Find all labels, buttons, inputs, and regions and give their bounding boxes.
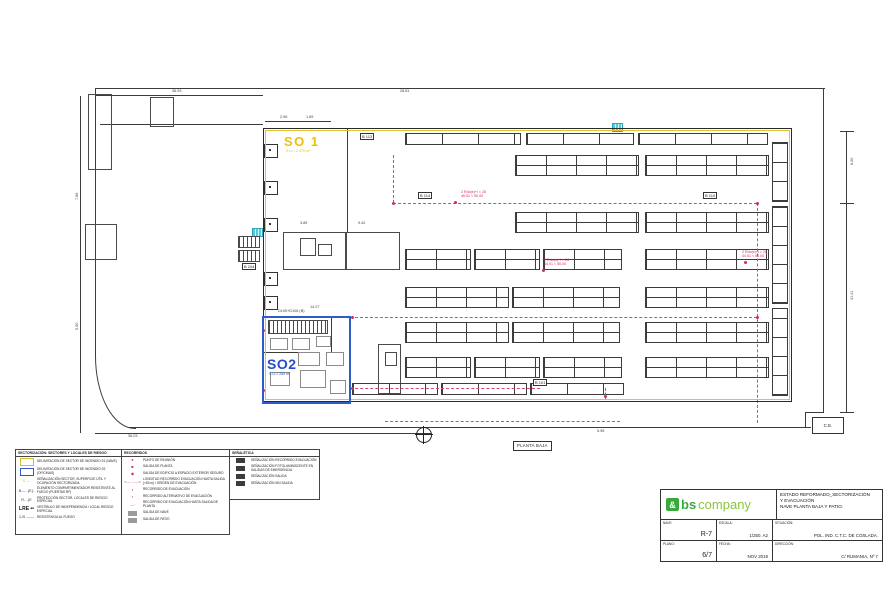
field-value: R-7 — [701, 531, 712, 538]
wall-line — [805, 412, 824, 413]
wall-line — [95, 88, 825, 89]
legend-symbol-icon — [124, 518, 141, 523]
legend-item-text: RECORRIDO ALTERNATIVO DE EVACUACIÓN — [143, 495, 212, 499]
dimension-label: 28.81 — [400, 89, 410, 93]
logo-ampersand-icon: & — [666, 498, 679, 511]
legend-symbol-icon — [18, 458, 35, 466]
legend-item: SEÑALIZACIÓN RECORRIDO EVACUACIÓN — [230, 457, 319, 464]
legend-item-text: SEÑALIZACIÓN SALIDA — [251, 475, 287, 479]
wall-line — [840, 131, 854, 132]
legend-title: SEÑALÉTICA — [230, 450, 319, 457]
legend-item: DELIMITACIÓN DE SECTOR DE INCENDIO S1 (N… — [16, 457, 121, 467]
legend-item-text: SALIDA DE PLANTA — [143, 465, 173, 469]
legend-symbol-icon: ◆ — [124, 472, 141, 477]
legend-item: R- -(EPROTECCIÓN SECTOR, LOCALES DE RIES… — [16, 496, 121, 505]
legend-item: ■SALIDA DE PLANTA — [122, 464, 229, 471]
legend-item: SALIDA DE NAVE — [122, 510, 229, 517]
legend-item-text: SEÑALIZACIÓN RECORRIDO EVACUACIÓN — [251, 459, 316, 463]
field-value: POL. IND. C.T.C. DE COSLADA. — [814, 533, 878, 538]
field-situacion: SITUACIÓN: POL. IND. C.T.C. DE COSLADA. — [773, 520, 882, 540]
room — [88, 94, 112, 170]
legend-item: DELIMITACIÓN DE SECTOR DE INCENDIO S2 (O… — [16, 467, 121, 477]
hatch-block — [238, 250, 260, 262]
wall-line — [95, 95, 263, 96]
legend-symbol-icon: B— -(E)- — [18, 489, 35, 494]
legend-item-text: VESTÍBULO DE INDEPENDENCIA / LOCAL RIESG… — [37, 506, 119, 513]
wall-line — [840, 203, 854, 204]
field-label: SITUACIÓN: — [775, 521, 793, 525]
legend-item-text: ELEMENTO COMPARTIMENTADOR RESISTENTE AL … — [37, 487, 119, 494]
wall-line — [846, 131, 847, 413]
legend-item-text: DELIMITACIÓN DE SECTOR DE INCENDIO S1 (N… — [37, 460, 117, 464]
legend-recorridos: RECORRIDOS ●PUNTO DE REUNIÓN■SALIDA DE P… — [121, 449, 230, 535]
dimension-label: 5.90 — [75, 323, 79, 330]
dimension-label: 36.93 — [172, 89, 182, 93]
dimension-label: 36.03 — [128, 434, 138, 438]
field-label: NAVE: — [663, 521, 672, 525]
legend-item-text: RECORRIDO DE EVACUACIÓN — [143, 488, 190, 492]
legend-symbol-icon: ▪ — [124, 495, 141, 500]
wall-line — [100, 124, 263, 125]
field-plano: PLANO: 6/7 — [661, 541, 717, 561]
legend-item-text: DELIMITACIÓN DE SECTOR DE INCENDIO S2 (O… — [37, 468, 119, 475]
legend-item-text: RESISTENCIA AL FUEGO — [37, 516, 75, 520]
evacuation-route — [385, 421, 620, 422]
logo-text-bold: bs — [681, 497, 696, 512]
legend-item: SEÑALIZACIÓN FOTOLUMINISCENTE EN SALIDAS… — [230, 464, 319, 473]
legend-item-text: SALIDA DE NAVE — [143, 511, 169, 515]
legend-symbol-icon — [232, 481, 249, 486]
title-block: & bscompany ESTADO REFORMADO_SECTORIZACI… — [660, 489, 883, 562]
field-label: ESCALA: — [719, 521, 732, 525]
legend-item: LRE ••VESTÍBULO DE INDEPENDENCIA / LOCAL… — [16, 505, 121, 514]
wall-line — [840, 412, 854, 413]
wall-line — [95, 433, 431, 434]
wall-line — [265, 121, 331, 122]
field-value: 6/7 — [702, 552, 712, 559]
legend-symbol-icon: —· — [124, 503, 141, 508]
legend-symbol-icon: ■ — [124, 465, 141, 470]
boxed-label: B 104 — [242, 263, 256, 270]
compass-icon — [416, 427, 432, 443]
legend-symbol-icon: S — — [18, 479, 35, 484]
company-logo: & bscompany — [661, 490, 777, 519]
legend-symbol-icon — [232, 458, 249, 463]
sector-so1-label: SO 1 — [284, 134, 320, 149]
legend-item-text: SEÑALIZACIÓN FOTOLUMINISCENTE EN SALIDAS… — [251, 465, 317, 472]
legend-item: ◖RECORRIDO DE EVACUACIÓN — [122, 487, 229, 494]
wall-line — [805, 412, 806, 428]
legend-symbol-icon — [18, 468, 35, 476]
legend-symbol-icon: 1-B —— — [18, 515, 35, 520]
legend-item-text: PUNTO DE REUNIÓN — [143, 459, 175, 463]
field-value: NOV 2019 — [747, 554, 768, 559]
legend-item: ×—→—×LONGITUD RECORRIDO EVACUACIÓN HASTA… — [122, 477, 229, 486]
legend-symbol-icon: ● — [124, 458, 141, 463]
room — [85, 224, 117, 260]
legend-item-text: LONGITUD RECORRIDO EVACUACIÓN HASTA SALI… — [143, 478, 227, 485]
hatch-block — [238, 236, 260, 248]
legend-item-text: PROTECCIÓN SECTOR, LOCALES DE RIESGO ESP… — [37, 497, 119, 504]
field-label: PLANO: — [663, 542, 675, 546]
legend-symbol-icon: ◖ — [124, 488, 141, 493]
ce-box-label: C.E. — [812, 417, 844, 434]
legend-title: RECORRIDOS — [122, 450, 229, 457]
dimension-label: 1.89 — [306, 115, 313, 119]
drawing-title-line: NAVE PLANTA BAJA Y PATIO. — [780, 504, 879, 510]
dimension-label: 41.41 — [850, 290, 854, 300]
sector-so1-area: S.U.= 2.470 m² — [286, 149, 310, 153]
dimension-label: 6.00 — [850, 158, 854, 165]
drawing-title: ESTADO REFORMADO_SECTORIZACIÓN Y EVACUAC… — [777, 490, 882, 519]
legend-symbol-icon — [232, 466, 249, 471]
legend-item: S —SEÑALIZACIÓN SECTOR, SUPERFICIE ÚTIL … — [16, 477, 121, 486]
field-fecha: FECHA: NOV 2019 — [717, 541, 773, 561]
legend-senaletica: SEÑALÉTICA SEÑALIZACIÓN RECORRIDO EVACUA… — [229, 449, 320, 500]
wall-line — [823, 88, 824, 413]
field-nave: NAVE: R-7 — [661, 520, 717, 540]
legend-sectorizacion: SECTORIZACIÓN: SECTORES Y LOCALES DE RIE… — [15, 449, 122, 535]
legend-symbol-icon: ×—→—× — [124, 480, 141, 485]
legend-item: ●PUNTO DE REUNIÓN — [122, 457, 229, 464]
legend-item-text: SEÑALIZACIÓN SIN SALIDA — [251, 482, 293, 486]
sector-so2-label: SO2 — [267, 356, 297, 372]
legend-item-text: SEÑALIZACIÓN SECTOR, SUPERFICIE ÚTIL Y O… — [37, 478, 119, 485]
field-label: DIRECCIÓN: — [775, 542, 794, 546]
legend-item: 1-B ——RESISTENCIA AL FUEGO — [16, 514, 121, 521]
room — [150, 97, 174, 127]
field-escala: ESCALA: 1/250. A2 — [717, 520, 773, 540]
dimension-label: 7.86 — [75, 193, 79, 200]
field-direccion: DIRECCIÓN: C/ RUMANIA, Nº 7 — [773, 541, 882, 561]
legend-item-text: SALIDA DE PATIO — [143, 518, 169, 522]
legend-item: —·RECORRIDO DE EVACUACIÓN HASTA SALIDA D… — [122, 500, 229, 509]
legend-symbol-icon — [124, 511, 141, 516]
legend-item-text: RECORRIDO DE EVACUACIÓN HASTA SALIDA DE … — [143, 501, 227, 508]
legend-item-text: SALIDA DE EDIFICIO A ESPACIO EXTERIOR SE… — [143, 472, 224, 476]
legend-title: SECTORIZACIÓN: SECTORES Y LOCALES DE RIE… — [16, 450, 121, 457]
field-value: C/ RUMANIA, Nº 7 — [841, 554, 878, 559]
floor-plan-page: B 114B 110B 113B 101B 1042 Rdo(s)+I = 28… — [0, 0, 896, 602]
legend-item: SALIDA DE PATIO — [122, 517, 229, 524]
legend-symbol-icon — [232, 474, 249, 479]
wall-line — [128, 427, 811, 428]
legend-item: SEÑALIZACIÓN SALIDA — [230, 473, 319, 480]
dimension-label: 5.98 — [597, 429, 604, 433]
logo-text-light: company — [698, 497, 751, 512]
planta-baja-label: PLANTA BAJA — [513, 441, 552, 451]
wall-line — [80, 96, 81, 433]
field-value: 1/250. A2 — [749, 533, 768, 538]
legend-symbol-icon: LRE •• — [18, 507, 35, 513]
legend-item: SEÑALIZACIÓN SIN SALIDA — [230, 480, 319, 487]
field-label: FECHA: — [719, 542, 731, 546]
sector-so2-area: S.U.= 265 m² — [269, 372, 290, 376]
dimension-label: 2.96 — [280, 115, 287, 119]
legend-symbol-icon: R- -(E — [18, 498, 35, 503]
legend-item: B— -(E)-ELEMENTO COMPARTIMENTADOR RESIST… — [16, 486, 121, 495]
